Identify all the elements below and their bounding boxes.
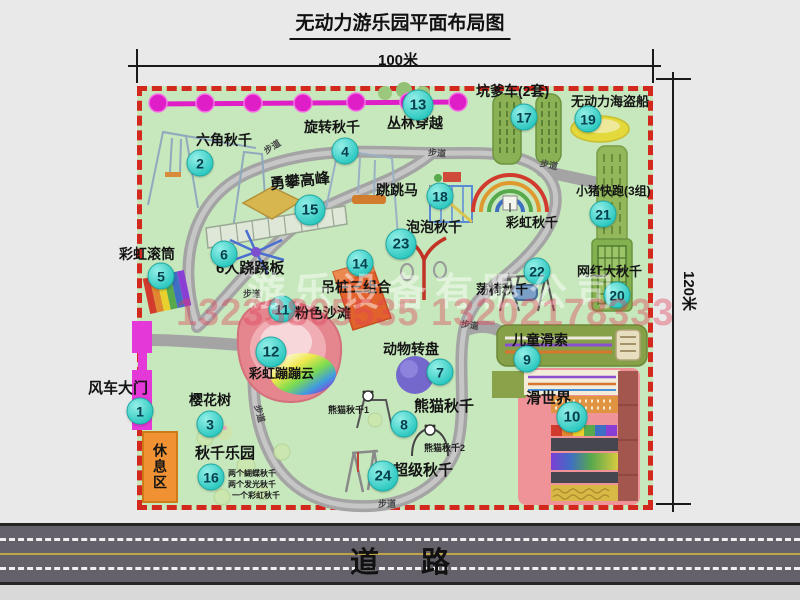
height-dimension-label: 120米 bbox=[679, 271, 700, 311]
pit-car-badge: 17 bbox=[511, 104, 538, 131]
rotating-swing-badge: 4 bbox=[332, 138, 359, 165]
below-road-strip bbox=[0, 585, 800, 600]
slide-world-badge: 10 bbox=[557, 402, 588, 433]
swing-chair-label: 荡椅秋千 bbox=[476, 283, 528, 296]
bubble-swing-label: 泡泡秋千 bbox=[406, 220, 462, 234]
kids-zipline-badge: 9 bbox=[514, 346, 541, 373]
hexagon-swing-badge: 2 bbox=[187, 150, 214, 177]
super-swing-badge: 24 bbox=[368, 461, 399, 492]
climb-peak-badge: 15 bbox=[295, 195, 326, 226]
path-label-4: 步道 bbox=[243, 287, 261, 300]
pirate-ship-badge: 19 bbox=[575, 106, 602, 133]
rainbow-roller-badge: 5 bbox=[148, 263, 175, 290]
swing-park-line-2: 两个发光秋千 bbox=[228, 479, 276, 490]
swing-park-line-3: 一个彩虹秋千 bbox=[232, 490, 280, 501]
pink-beach-badge: 11 bbox=[269, 296, 296, 323]
rest-area-label: 休息区 bbox=[150, 443, 170, 491]
hanging-posts-badge: 14 bbox=[347, 250, 374, 277]
pink-beach-label: 粉色沙滩 bbox=[295, 306, 351, 320]
animal-turntable-label: 动物转盘 bbox=[383, 342, 439, 356]
bubble-swing-badge: 23 bbox=[386, 229, 417, 260]
rotating-swing-label: 旋转秋千 bbox=[304, 120, 360, 134]
rainbow-cloud-label: 彩虹蹦蹦云 bbox=[249, 367, 314, 380]
swing-park-badge: 16 bbox=[198, 464, 225, 491]
screenshot-root: 无动力游乐园平面布局图 100米 120米 bbox=[0, 0, 800, 600]
super-swing-label: 超级秋千 bbox=[393, 463, 453, 478]
pig-run-label: 小猪快跑(3组) bbox=[576, 185, 651, 197]
windmill-gate-label: 风车大门 bbox=[88, 381, 148, 396]
panda-swing-badge: 8 bbox=[391, 411, 418, 438]
windmill-gate-badge: 1 bbox=[127, 398, 154, 425]
rainbow-roller-label: 彩虹滚筒 bbox=[119, 247, 175, 261]
path-label-2: 步道 bbox=[427, 145, 446, 160]
panda-swing-1-label: 熊猫秋千1 bbox=[328, 403, 369, 416]
swing-chair-badge: 22 bbox=[524, 258, 551, 285]
road: 道路 bbox=[0, 523, 800, 585]
cherry-tree-label: 樱花树 bbox=[189, 393, 231, 407]
jump-horse-badge: 18 bbox=[427, 183, 454, 210]
swing-park-line-1: 两个蝴蝶秋千 bbox=[228, 468, 276, 479]
rainbow-swing-label: 彩虹秋千 bbox=[506, 216, 558, 229]
jungle-crossing-badge: 13 bbox=[403, 90, 434, 121]
swing-park-label: 秋千乐园 bbox=[195, 446, 255, 461]
pit-car-label: 坑爹车(2套) bbox=[476, 84, 549, 98]
rest-area: 休息区 bbox=[142, 431, 178, 503]
hanging-posts-label: 吊桩三组合 bbox=[321, 280, 391, 294]
cherry-tree-badge: 3 bbox=[197, 411, 224, 438]
rainbow-cloud-badge: 12 bbox=[256, 337, 287, 368]
six-seesaw-badge: 6 bbox=[211, 241, 238, 268]
kids-zipline-label: 儿童滑索 bbox=[512, 333, 568, 347]
panda-swing-label: 熊猫秋千 bbox=[414, 399, 474, 414]
path-label-5: 步道 bbox=[460, 317, 480, 332]
path-label-7: 步道 bbox=[378, 497, 396, 510]
panda-swing-2-label: 熊猫秋千2 bbox=[424, 441, 465, 454]
big-swing-badge: 20 bbox=[604, 282, 631, 309]
hexagon-swing-label: 六角秋千 bbox=[196, 133, 252, 147]
animal-turntable-badge: 7 bbox=[427, 359, 454, 386]
big-swing-label: 网红大秋千 bbox=[577, 265, 642, 278]
road-label: 道路 bbox=[0, 539, 800, 581]
pig-run-badge: 21 bbox=[590, 201, 617, 228]
jump-horse-label: 跳跳马 bbox=[376, 183, 418, 197]
page-title: 无动力游乐园平面布局图 bbox=[289, 8, 510, 40]
width-dimension-label: 100米 bbox=[368, 49, 428, 70]
